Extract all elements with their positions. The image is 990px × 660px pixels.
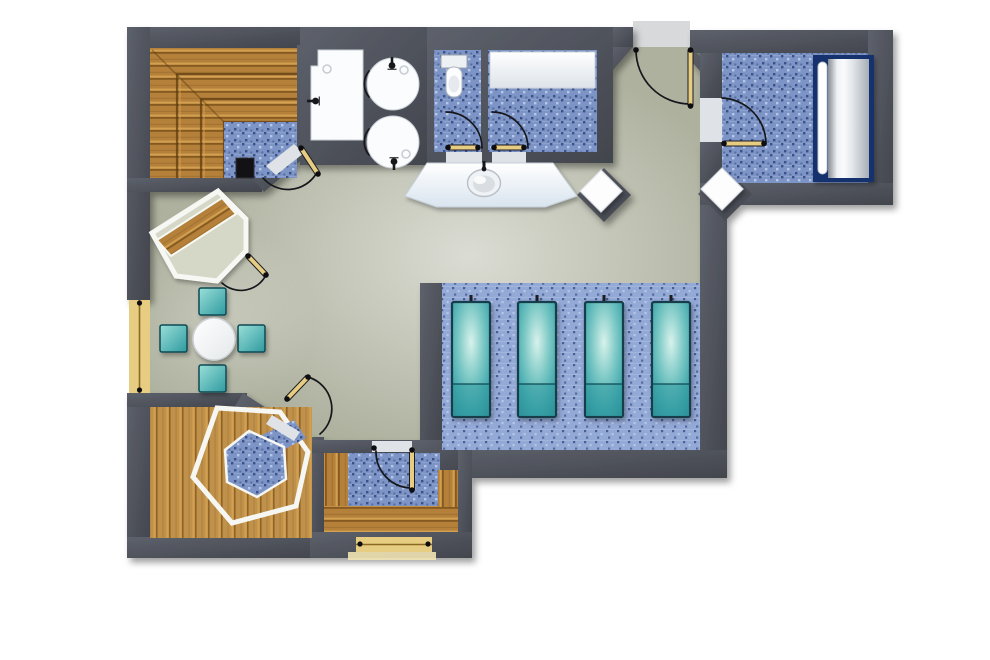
lounger-footrest — [653, 384, 689, 416]
bed-rail — [818, 62, 827, 174]
stool-bottom — [199, 365, 226, 392]
faucet-icon — [482, 167, 487, 172]
wall — [127, 27, 307, 48]
treatment-door-threshold — [700, 98, 722, 142]
wall — [700, 205, 727, 478]
window-end — [425, 541, 430, 546]
vanity-basin-highlight — [474, 176, 486, 184]
window-end — [137, 300, 142, 305]
sauna-floor-tile — [224, 122, 297, 178]
sauna-heater — [236, 158, 254, 178]
wall — [690, 30, 893, 53]
lounger-footrest — [453, 384, 489, 416]
bed-roll — [828, 59, 869, 178]
cabin-room — [324, 441, 458, 532]
stool-left — [160, 325, 187, 352]
treatment-bed — [813, 55, 874, 182]
vanity — [405, 161, 577, 207]
lounger-footrest — [519, 384, 555, 416]
lounger — [452, 295, 490, 417]
window-light-spill — [348, 552, 436, 560]
lounger — [585, 295, 623, 417]
wall — [127, 393, 150, 558]
wall — [613, 27, 633, 47]
wall-platform-step — [420, 283, 442, 453]
lounger — [518, 295, 556, 417]
wall — [700, 53, 722, 98]
stool-top — [199, 288, 226, 315]
lounger-platform — [442, 283, 700, 450]
lounger — [652, 295, 690, 417]
stool-right — [238, 325, 265, 352]
changing-door-threshold — [492, 152, 526, 163]
cabin-door-threshold — [372, 441, 412, 452]
lounger-footrest — [586, 384, 622, 416]
window-end — [357, 541, 362, 546]
window-end — [137, 387, 142, 392]
wall — [127, 537, 324, 558]
wc-door-threshold — [446, 152, 482, 163]
floor-plan-svg — [0, 0, 990, 660]
entrance-landing — [633, 21, 690, 47]
window-left — [129, 300, 150, 393]
changing-bench — [490, 52, 595, 88]
cabin-bench-bottom — [324, 506, 458, 532]
cabin-bench-right — [438, 470, 458, 507]
wall — [127, 27, 150, 300]
sauna-room — [150, 48, 304, 178]
toilet-bowl-inner — [449, 76, 460, 93]
shower-room-floor — [311, 50, 363, 140]
wall — [127, 178, 262, 192]
toilet-cistern — [441, 55, 467, 68]
wall — [310, 437, 324, 548]
floor-plan-stage — [0, 0, 990, 660]
steam-room — [150, 407, 312, 538]
window-bottom — [348, 537, 436, 560]
round-table — [193, 318, 235, 360]
treatment-room — [700, 53, 874, 183]
wall — [127, 393, 247, 407]
